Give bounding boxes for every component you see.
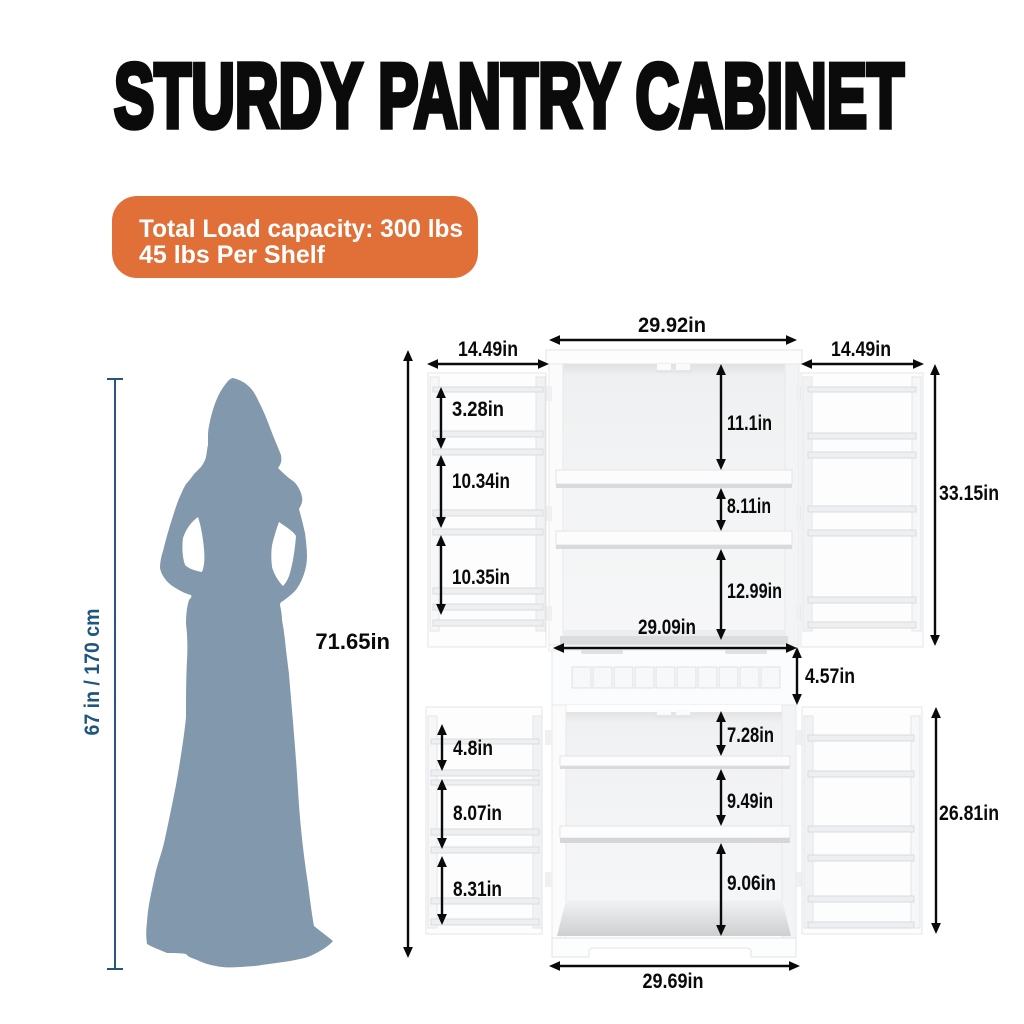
svg-text:71.65in: 71.65in: [315, 629, 390, 654]
svg-text:14.49in: 14.49in: [458, 338, 518, 361]
svg-text:33.15in: 33.15in: [939, 482, 999, 505]
svg-text:3.28in: 3.28in: [452, 398, 504, 421]
svg-text:7.28in: 7.28in: [727, 724, 774, 747]
svg-text:8.11in: 8.11in: [727, 495, 771, 518]
svg-text:4.57in: 4.57in: [805, 665, 855, 688]
svg-text:10.34in: 10.34in: [452, 470, 510, 493]
svg-text:9.49in: 9.49in: [727, 790, 773, 813]
svg-text:29.92in: 29.92in: [638, 314, 706, 337]
svg-text:45 lbs Per Shelf: 45 lbs Per Shelf: [139, 241, 326, 269]
svg-text:29.09in: 29.09in: [638, 616, 696, 639]
svg-text:4.8in: 4.8in: [453, 737, 493, 760]
svg-text:STURDY PANTRY CABINET: STURDY PANTRY CABINET: [114, 46, 904, 147]
svg-text:10.35in: 10.35in: [452, 566, 510, 589]
svg-text:12.99in: 12.99in: [727, 580, 782, 603]
svg-text:67 in / 170 cm: 67 in / 170 cm: [81, 609, 104, 736]
svg-text:29.69in: 29.69in: [643, 970, 704, 993]
svg-text:Total Load capacity: 300 lbs: Total Load capacity: 300 lbs: [139, 215, 463, 243]
svg-text:8.07in: 8.07in: [453, 802, 502, 825]
svg-text:11.1in: 11.1in: [727, 412, 772, 435]
svg-text:14.49in: 14.49in: [831, 338, 891, 361]
svg-text:8.31in: 8.31in: [453, 878, 502, 901]
svg-text:9.06in: 9.06in: [727, 872, 776, 895]
svg-text:26.81in: 26.81in: [939, 802, 999, 825]
